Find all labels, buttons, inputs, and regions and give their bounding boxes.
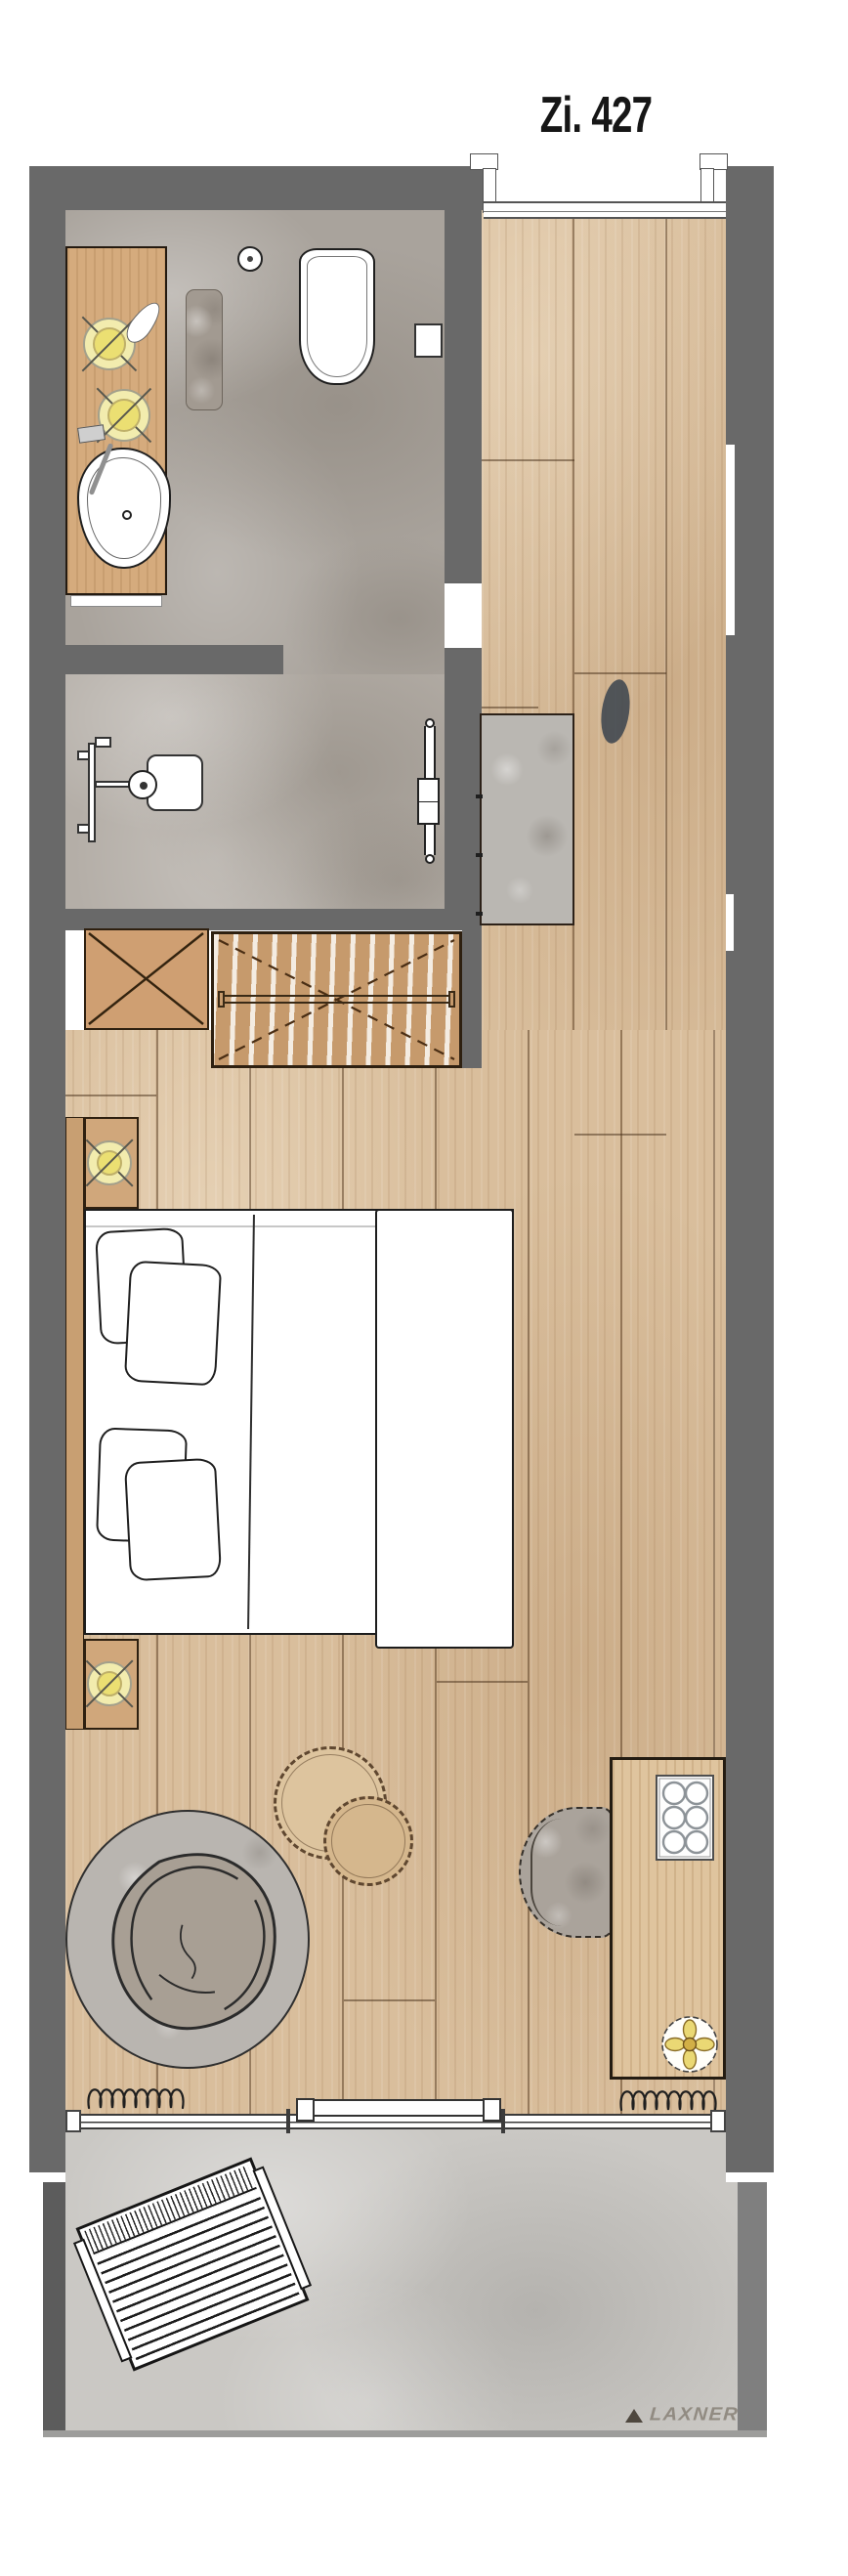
minibar-tray (656, 1775, 714, 1861)
wardrobe-rail (222, 995, 451, 1004)
wall-bathroom-lower (445, 650, 482, 930)
plant-icon (87, 1661, 132, 1706)
sideboard-handle (476, 912, 483, 916)
flush-button (247, 256, 253, 262)
wall-niche-lower (726, 894, 734, 951)
logo: LAXNER (625, 2404, 739, 2426)
crossed-storage-cabinet (84, 928, 209, 1030)
radiator-icon (618, 2082, 718, 2113)
wall-top (29, 166, 484, 210)
balcony-wall-gap-left (29, 2172, 65, 2182)
rail-end (448, 991, 455, 1008)
wall-bathroom-bottom (29, 909, 482, 930)
window-jamb (710, 2110, 726, 2132)
wall-left (29, 166, 65, 2172)
plank-joint (482, 459, 574, 461)
wardrobe (211, 931, 462, 1068)
rail-end (218, 991, 225, 1008)
armchair (65, 1810, 310, 2069)
duvet (375, 1209, 514, 1649)
coffee-table (323, 1796, 413, 1886)
door-handle (417, 778, 440, 825)
entry-door-threshold (484, 201, 726, 219)
plank-joint (574, 672, 666, 674)
vanity-shelf (70, 595, 162, 607)
plank-joint (574, 1134, 666, 1136)
floor-plan: Zi. 427 (0, 0, 848, 2576)
sideboard (480, 713, 574, 925)
radiator-icon (86, 2080, 186, 2111)
bathroom-doorway (445, 581, 482, 650)
plank-joint (65, 1095, 156, 1096)
plant-icon (98, 389, 150, 442)
door-pivot-icon (425, 854, 435, 864)
flush-plate-icon (237, 246, 263, 272)
plant-icon (87, 1140, 132, 1185)
logo-mark-icon (625, 2409, 643, 2423)
window-mullion (286, 2109, 290, 2133)
pillow (124, 1458, 222, 1582)
room-number-label: Zi. 427 (491, 86, 701, 145)
sideboard-handle (476, 794, 483, 798)
window-mullion (501, 2109, 505, 2133)
balcony-edge-line (43, 2430, 767, 2437)
shower-bar (88, 743, 96, 842)
balcony-wall-left (43, 2182, 65, 2430)
decor-plate (659, 2014, 720, 2075)
pillow (124, 1261, 222, 1387)
plank-joint (482, 707, 538, 708)
wall-bathroom-upper (445, 210, 482, 581)
sliding-window-door (298, 2099, 499, 2117)
headboard (65, 1117, 84, 1730)
shower-head-icon (128, 770, 157, 799)
toilet (299, 248, 375, 385)
wall-wardrobe-side (462, 930, 482, 1068)
door-pivot-icon (425, 718, 435, 728)
sideboard-handle (476, 853, 483, 857)
shower-knob (95, 737, 111, 748)
balcony-wall-right (738, 2182, 767, 2430)
wall-shower-stub (65, 645, 283, 674)
shower-floor (65, 674, 445, 909)
plank-joint (437, 1681, 528, 1683)
logo-text: LAXNER (649, 2405, 740, 2426)
bath-mat (186, 289, 223, 410)
shower-head-center (140, 782, 148, 790)
wall-niche-upper (726, 445, 735, 635)
drain-icon (122, 510, 132, 520)
balcony-wall-gap-right (726, 2172, 774, 2182)
toilet-paper-holder (414, 323, 443, 358)
plank-joint (344, 1999, 435, 2001)
window-jamb (65, 2110, 81, 2132)
